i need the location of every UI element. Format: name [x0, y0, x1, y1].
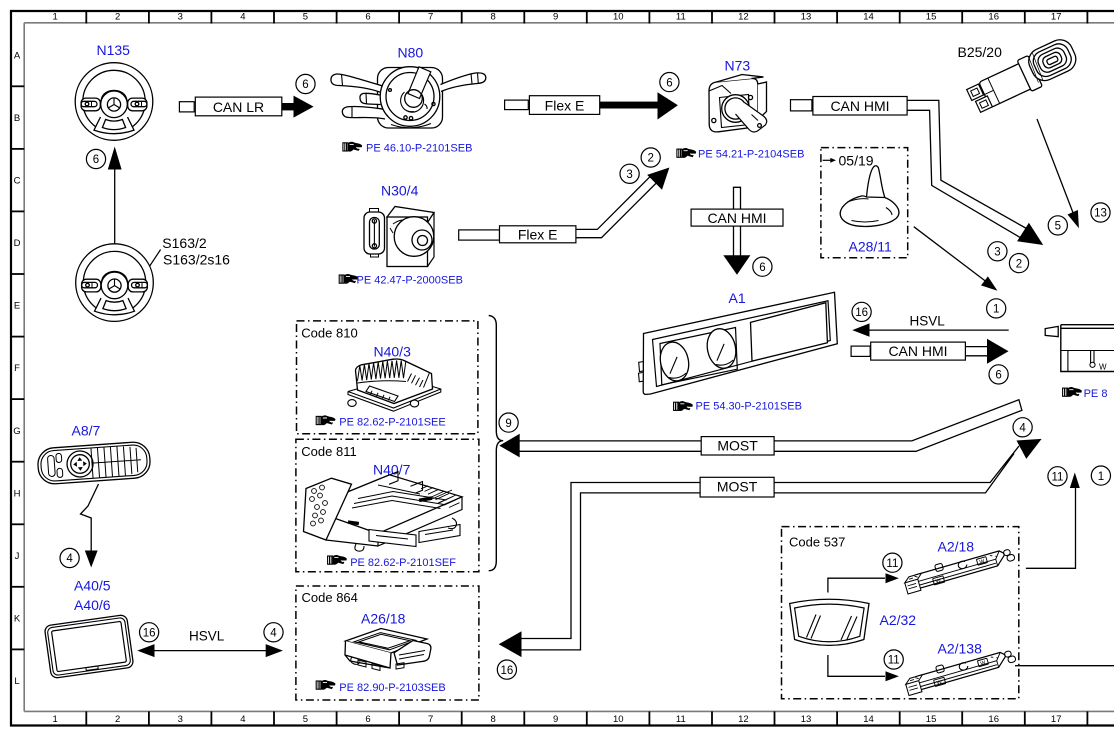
svg-text:A2/18: A2/18	[938, 539, 975, 555]
svg-text:N73: N73	[725, 58, 751, 74]
svg-text:PE 46.10-P-2101SEB: PE 46.10-P-2101SEB	[366, 143, 472, 155]
svg-text:11: 11	[1052, 472, 1064, 484]
svg-text:W: W	[1099, 363, 1107, 372]
svg-text:N135: N135	[97, 42, 131, 58]
svg-text:16: 16	[501, 665, 514, 677]
svg-text:9: 9	[553, 12, 558, 23]
svg-text:5: 5	[303, 12, 308, 23]
svg-text:2: 2	[115, 714, 120, 725]
svg-text:Code 811: Code 811	[301, 444, 356, 459]
svg-text:A1: A1	[729, 290, 746, 306]
svg-text:1: 1	[1098, 471, 1104, 483]
svg-text:PE 54.21-P-2104SEB: PE 54.21-P-2104SEB	[698, 149, 804, 161]
svg-text:L: L	[14, 676, 19, 687]
svg-text:G: G	[13, 426, 20, 437]
svg-text:CAN HMI: CAN HMI	[888, 343, 947, 359]
svg-text:2: 2	[115, 12, 120, 23]
svg-text:PE 8: PE 8	[1084, 388, 1108, 400]
svg-text:15: 15	[926, 714, 937, 725]
svg-text:2: 2	[1016, 258, 1022, 270]
svg-text:5: 5	[1055, 221, 1061, 233]
svg-text:PE 82.90-P-2103SEB: PE 82.90-P-2103SEB	[339, 682, 445, 694]
svg-text:14: 14	[863, 714, 874, 725]
svg-text:6: 6	[995, 370, 1001, 382]
svg-text:16: 16	[143, 628, 156, 640]
svg-text:A28/11: A28/11	[849, 239, 893, 255]
svg-text:B25/20: B25/20	[958, 44, 1003, 60]
svg-text:05/19: 05/19	[839, 153, 874, 169]
svg-text:11: 11	[676, 714, 686, 725]
svg-text:N30/4: N30/4	[381, 183, 419, 199]
svg-text:4: 4	[1019, 423, 1026, 435]
svg-text:11: 11	[888, 655, 900, 667]
svg-text:6: 6	[365, 12, 370, 23]
svg-text:K: K	[14, 614, 21, 625]
svg-text:PE 42.47-P-2000SEB: PE 42.47-P-2000SEB	[357, 275, 463, 287]
svg-text:12: 12	[738, 12, 749, 23]
svg-text:Code 537: Code 537	[789, 535, 845, 550]
svg-text:CAN HMI: CAN HMI	[707, 210, 766, 226]
svg-text:F: F	[14, 363, 20, 374]
svg-text:17: 17	[1051, 12, 1062, 23]
svg-text:5: 5	[303, 714, 308, 725]
svg-text:CAN LR: CAN LR	[213, 99, 264, 115]
svg-text:CAN HMI: CAN HMI	[830, 98, 889, 114]
svg-text:4: 4	[240, 12, 245, 23]
svg-text:6: 6	[365, 714, 370, 725]
svg-text:7: 7	[428, 12, 433, 23]
svg-text:MOST: MOST	[717, 437, 758, 453]
svg-text:B: B	[14, 113, 20, 124]
svg-text:4: 4	[66, 553, 73, 565]
svg-text:1: 1	[993, 304, 999, 316]
svg-text:H: H	[14, 488, 21, 499]
svg-text:6: 6	[759, 262, 765, 274]
svg-text:A40/6: A40/6	[74, 597, 111, 613]
svg-text:6: 6	[666, 77, 672, 89]
svg-text:17: 17	[1051, 714, 1062, 725]
svg-text:13: 13	[1094, 208, 1107, 220]
svg-text:1: 1	[53, 12, 58, 23]
svg-text:J: J	[15, 551, 20, 562]
svg-text:S163/2s16: S163/2s16	[163, 252, 230, 268]
svg-text:PE 54.30-P-2101SEB: PE 54.30-P-2101SEB	[696, 401, 802, 413]
svg-text:11: 11	[886, 558, 898, 570]
svg-text:PE 82.62-P-2101SEF: PE 82.62-P-2101SEF	[350, 557, 456, 569]
svg-text:3: 3	[178, 714, 183, 725]
svg-text:C: C	[14, 176, 21, 187]
svg-text:7: 7	[428, 714, 433, 725]
svg-text:13: 13	[801, 714, 812, 725]
svg-text:13: 13	[801, 12, 812, 23]
svg-text:16: 16	[988, 714, 999, 725]
svg-text:D: D	[14, 238, 21, 249]
svg-text:E: E	[14, 301, 20, 312]
svg-text:6: 6	[302, 79, 308, 91]
svg-text:14: 14	[863, 12, 874, 23]
svg-text:11: 11	[676, 12, 686, 23]
svg-text:4: 4	[240, 714, 245, 725]
svg-text:A26/18: A26/18	[361, 611, 406, 627]
svg-text:HSVL: HSVL	[910, 314, 946, 329]
svg-text:A2/138: A2/138	[938, 641, 983, 657]
svg-text:A8/7: A8/7	[72, 423, 101, 439]
svg-text:8: 8	[490, 714, 495, 725]
svg-text:3: 3	[994, 247, 1000, 259]
svg-text:A40/5: A40/5	[74, 578, 111, 594]
svg-text:N40/3: N40/3	[374, 344, 412, 360]
svg-text:Flex E: Flex E	[545, 97, 585, 113]
svg-text:3: 3	[178, 12, 183, 23]
svg-text:A2/32: A2/32	[880, 612, 917, 628]
svg-text:8: 8	[490, 12, 495, 23]
svg-text:2: 2	[647, 153, 653, 165]
svg-text:4: 4	[270, 628, 277, 640]
svg-text:15: 15	[926, 12, 937, 23]
svg-text:10: 10	[613, 714, 624, 725]
svg-text:1: 1	[53, 714, 58, 725]
svg-text:9: 9	[553, 714, 558, 725]
svg-text:HSVL: HSVL	[189, 629, 225, 644]
svg-text:A: A	[14, 51, 21, 62]
svg-text:Code 864: Code 864	[302, 590, 358, 605]
svg-text:12: 12	[738, 714, 749, 725]
svg-text:Flex E: Flex E	[518, 226, 558, 242]
svg-text:6: 6	[93, 154, 99, 166]
svg-text:PE 82.62-P-2101SEE: PE 82.62-P-2101SEE	[339, 417, 445, 429]
svg-text:N80: N80	[398, 45, 424, 61]
svg-text:Code 810: Code 810	[301, 326, 357, 341]
svg-text:16: 16	[855, 307, 868, 319]
svg-text:3: 3	[626, 169, 632, 181]
svg-text:MOST: MOST	[717, 479, 758, 495]
svg-text:S163/2: S163/2	[162, 235, 207, 251]
svg-text:10: 10	[613, 12, 624, 23]
svg-text:16: 16	[988, 12, 999, 23]
svg-text:9: 9	[505, 418, 511, 430]
